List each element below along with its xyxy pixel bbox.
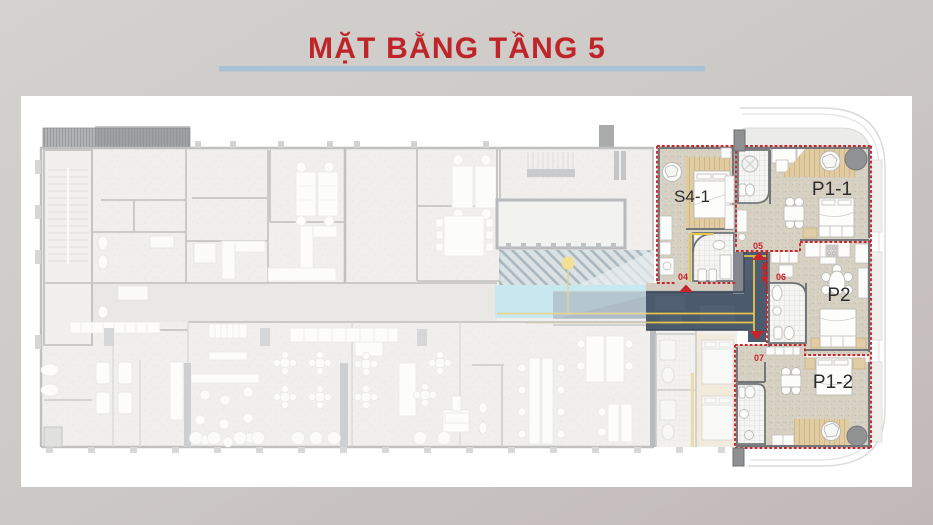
svg-text:P1-1: P1-1 (812, 179, 852, 200)
svg-text:P2: P2 (827, 285, 850, 306)
svg-text:05: 05 (753, 241, 763, 251)
svg-text:07: 07 (754, 353, 764, 363)
svg-text:06: 06 (776, 272, 786, 282)
svg-text:04: 04 (678, 272, 688, 282)
svg-text:S4-1: S4-1 (674, 187, 710, 206)
svg-text:P1-2: P1-2 (813, 372, 853, 393)
svg-text:MẶT BẰNG TẦNG 5: MẶT BẰNG TẦNG 5 (308, 31, 606, 65)
